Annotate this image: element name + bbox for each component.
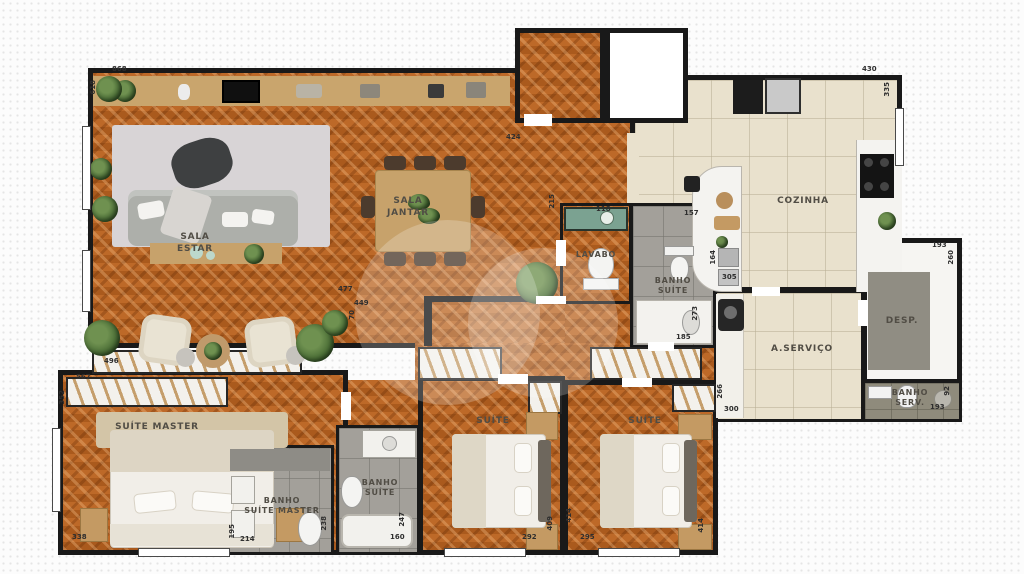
pillow	[662, 443, 680, 473]
dim-banho-master-bottom: 214	[240, 536, 255, 543]
tv	[222, 80, 260, 103]
label-sala-jantar: SALA JANTAR	[368, 196, 448, 219]
dim-banho-suite-left: 273	[692, 306, 699, 321]
wardrobe-suite3	[672, 384, 716, 412]
pillow	[251, 209, 275, 226]
dim-banho2-right: 247	[399, 512, 406, 527]
room-entry-hall	[515, 28, 605, 123]
plant	[96, 76, 122, 102]
pillow	[662, 486, 680, 516]
dim-hall-top: 424	[506, 134, 521, 141]
toilet	[298, 512, 322, 546]
dim-suite3-right: 414	[698, 518, 705, 533]
label-sala-estar: SALA ESTAR	[150, 232, 240, 255]
bath-counter	[636, 300, 712, 344]
shower-area	[230, 449, 330, 471]
pillow	[222, 212, 248, 227]
door-opening	[858, 300, 868, 326]
sink	[718, 248, 739, 267]
dining-chair	[414, 156, 436, 170]
dim-banho-master-right: 238	[321, 516, 328, 531]
dim-kitchen-right: 335	[884, 82, 891, 97]
door-opening	[524, 114, 552, 126]
bed-headboard	[538, 440, 551, 522]
dim-desp-right: 260	[948, 250, 955, 265]
window	[82, 250, 91, 312]
window	[895, 108, 904, 166]
plant	[92, 196, 118, 222]
dim-servico-left: 266	[717, 384, 724, 399]
bed-headboard	[684, 440, 697, 522]
bed-blanket	[600, 434, 634, 528]
dim-living-left: 618	[90, 80, 97, 95]
decor-books	[360, 84, 380, 98]
label-banho-suite-2: BANHO SUÍTE	[342, 478, 418, 499]
plant	[322, 310, 348, 336]
oven-cabinet	[765, 78, 801, 114]
room-elevator-hall	[605, 28, 688, 123]
dim-sala-bottom: 477	[338, 286, 353, 293]
label-banho-suite-master: BANHO SUÍTE MASTER	[234, 496, 330, 517]
door-opening	[341, 392, 351, 420]
dim-banho2-bottom: 160	[390, 534, 405, 541]
door-opening	[622, 378, 652, 387]
label-lavabo: LAVABO	[564, 250, 628, 260]
dim-suite-master-left: 352	[59, 390, 66, 405]
label-suite-3: SUÍTE	[600, 416, 690, 428]
plant	[90, 158, 112, 180]
basket	[716, 192, 733, 209]
door-opening	[752, 287, 780, 296]
toilet-tank	[664, 246, 694, 256]
dim-banho-master-left: 195	[229, 524, 236, 539]
dim-banho-serv-bottom: 193	[930, 404, 945, 411]
label-suite-master: SUÍTE MASTER	[92, 422, 222, 434]
dim-suite-master-top: 567	[76, 374, 91, 381]
window	[82, 126, 91, 210]
dim-hall-bottom: 449	[354, 300, 369, 307]
sink	[382, 436, 397, 451]
burner	[880, 182, 889, 191]
plant	[878, 212, 896, 230]
decor-candle	[428, 84, 444, 98]
dining-chair	[471, 196, 485, 218]
washer-door	[724, 306, 737, 319]
window	[444, 548, 526, 557]
wardrobe-suite-master	[66, 377, 228, 407]
decor-vase	[178, 84, 190, 100]
dim-counter-right: 164	[710, 250, 717, 265]
dining-chair	[444, 156, 466, 170]
dim-suite-master-bottom: 338	[72, 534, 87, 541]
dim-suite3-left: 414	[566, 508, 573, 523]
plant	[244, 244, 264, 264]
label-cozinha: COZINHA	[748, 196, 858, 208]
floor-plan: SALA ESTAR SALA JANTAR LAVABO BANHO SUÍT…	[0, 0, 1024, 574]
label-suite-2: SUÍTE	[448, 416, 538, 428]
plant	[204, 342, 222, 360]
stool	[684, 176, 700, 192]
label-desp: DESP.	[870, 316, 934, 328]
dim-suite3-bottom: 295	[580, 534, 595, 541]
burner	[864, 182, 873, 191]
decor-object	[296, 84, 322, 98]
dim-counter-bottom: 305	[722, 274, 737, 281]
burner	[880, 158, 889, 167]
dim-hall-height: 70	[349, 310, 356, 320]
fridge	[733, 80, 763, 114]
side-table	[176, 348, 195, 367]
dim-servico-bottom: 300	[724, 406, 739, 413]
dining-chair	[384, 156, 406, 170]
watermark	[468, 248, 618, 398]
dim-banho-serv-right: 92	[944, 386, 951, 396]
dim-banho-suite-top: 157	[684, 210, 699, 217]
bed-blanket	[452, 434, 486, 528]
floorplan-page: { "title": "Apartment floor plan (4 suit…	[0, 0, 1024, 574]
dim-living-top: 868	[112, 66, 127, 73]
opening-kitchen	[627, 133, 639, 203]
dim-lavabo-left: 215	[549, 194, 556, 209]
dim-kitchen-top: 430	[862, 66, 877, 73]
sink	[600, 211, 614, 225]
burner	[864, 158, 873, 167]
label-banho-suite-hall: BANHO SUÍTE	[632, 276, 714, 297]
dim-banho-suite-bottom: 185	[676, 334, 691, 341]
decor-object	[466, 82, 486, 98]
window	[52, 428, 61, 512]
plant	[716, 236, 728, 248]
door-opening	[648, 342, 674, 351]
plant	[84, 320, 120, 356]
dim-suite2-bottom: 292	[522, 534, 537, 541]
dim-desp-top: 193	[932, 242, 947, 249]
pillow	[191, 490, 235, 514]
dim-suite2-right: 409	[547, 516, 554, 531]
dim-closet-top: 496	[104, 358, 119, 365]
cutting-board	[714, 216, 740, 230]
pillow	[514, 443, 532, 473]
window	[598, 548, 680, 557]
label-a-servico: A.SERVIÇO	[744, 344, 860, 356]
dim-lavabo-top: 118	[596, 206, 611, 213]
window	[138, 548, 230, 557]
pillow	[514, 486, 532, 516]
